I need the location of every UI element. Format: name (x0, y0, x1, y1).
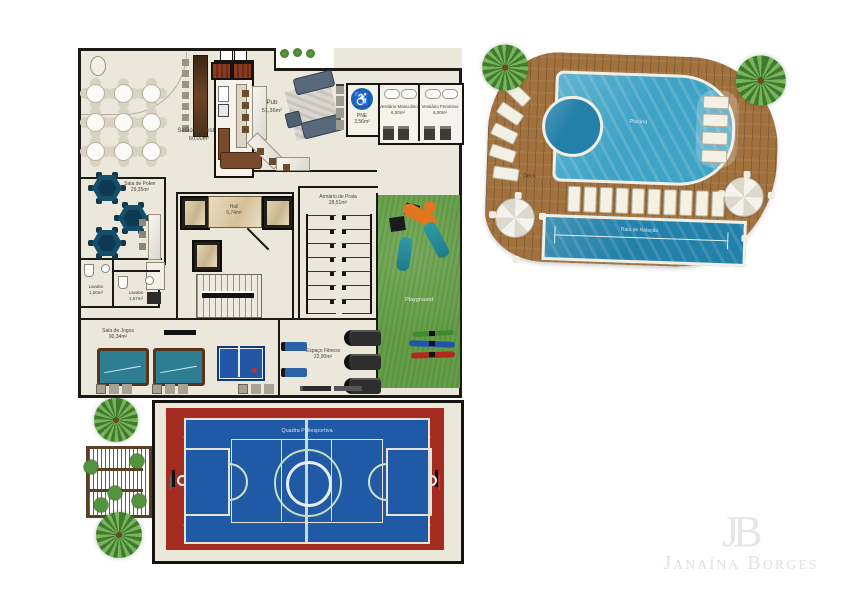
treadmill (344, 354, 381, 370)
row-lounger (647, 189, 661, 215)
vine (129, 453, 145, 469)
wall (78, 306, 160, 308)
court-block: Quadra Poliesportiva (152, 400, 464, 564)
plant-decor (306, 49, 315, 58)
court-blue: Quadra Poliesportiva (184, 418, 430, 544)
watermark-name: Janaína Borges (634, 552, 848, 575)
playground-lawn: Playground (378, 195, 460, 388)
wall (78, 318, 378, 320)
watermark-monogram: JB (722, 506, 756, 557)
play-slide-teal (396, 236, 414, 271)
room-label-quadra: Quadra Poliesportiva (186, 428, 428, 435)
vine (93, 497, 109, 513)
umbrella-chair (489, 211, 496, 218)
play-platform (389, 216, 406, 232)
palm-tree (735, 55, 787, 107)
volley-rect (231, 439, 383, 523)
shower-tub (425, 89, 441, 99)
stool-row (152, 384, 162, 394)
kitchen-sink (218, 86, 229, 102)
palm-tree (96, 512, 142, 558)
wall (112, 258, 114, 308)
wall (298, 186, 300, 320)
volley-third (281, 439, 282, 521)
wall (298, 186, 378, 188)
row-lounger (615, 187, 629, 213)
toilet (84, 264, 94, 277)
room-label-playground: Playground (378, 297, 460, 304)
treadmill (344, 330, 381, 346)
wall (274, 68, 462, 71)
room-label-poker: Sala de Poker29,35m² (120, 181, 160, 194)
wall (164, 177, 166, 265)
palm-tree (94, 398, 138, 442)
elevator (180, 196, 210, 230)
room-label-jogos: Sala de Jogos90,34m² (95, 328, 141, 341)
row-lounger (631, 188, 645, 214)
vine (83, 459, 99, 475)
locker-bay (342, 214, 372, 314)
wall (176, 192, 294, 194)
plant-decor (293, 48, 302, 57)
elevator (192, 240, 222, 272)
locker-dots (330, 216, 334, 220)
kitchen-door (234, 50, 247, 61)
wall (274, 48, 276, 70)
pool-deck-area: Piscina Deck Raia de Natação (483, 50, 780, 270)
dining-table (86, 84, 105, 103)
row-lounger (583, 186, 597, 212)
shower-tub (442, 89, 458, 99)
billiard-table (153, 348, 205, 386)
room-label-hall: Hall6,74m² (208, 204, 260, 217)
bench (398, 126, 409, 140)
room-label-wc-pne: PNE3,56m² (346, 113, 378, 126)
wall (176, 192, 178, 318)
seesaw-red (411, 351, 455, 359)
locker-bay (306, 214, 336, 314)
row-lounger (567, 186, 581, 212)
buffet-stool (182, 59, 189, 66)
wall (112, 270, 160, 272)
stool-row (238, 384, 248, 394)
key-left (184, 448, 230, 516)
pool-lounger (702, 131, 728, 145)
vine (131, 493, 147, 509)
treadmill (344, 378, 381, 394)
billiard-table (97, 348, 149, 386)
room-label-lavabo2: Lavabo1,57m² (116, 290, 156, 301)
play-cap-orange (424, 201, 436, 213)
backboard (172, 470, 175, 487)
vine (107, 485, 123, 501)
row-lounger (599, 187, 613, 213)
kitchen-door (220, 50, 233, 61)
wall (78, 395, 462, 398)
accessible-icon: ♿ (351, 88, 373, 110)
room-label-vest-masc: Vestiário Masculino6,00m² (379, 104, 417, 115)
room-label-armario: Armário de Praia28,51m² (302, 194, 374, 207)
sofa-brown (220, 152, 262, 169)
dining-table (86, 113, 105, 132)
court-red-surround: Quadra Poliesportiva (166, 408, 444, 550)
floor-plan: Salão de Festas60,00m² Pub51,36m² ♿ PNE3… (0, 0, 852, 600)
vase-decor (90, 56, 106, 76)
pool-lounger (703, 95, 729, 109)
dining-table (86, 142, 105, 161)
buffet-counter (193, 55, 208, 137)
pergola (86, 446, 152, 518)
elevator (262, 196, 294, 230)
pingpong-paddle (252, 368, 257, 373)
locker-dots (342, 216, 346, 220)
bar-counter (276, 157, 310, 171)
key-right (386, 448, 432, 516)
accessible-glyph: ♿ (353, 91, 370, 107)
shower-tub (401, 89, 417, 99)
bench (424, 126, 435, 140)
bench (383, 126, 394, 140)
wall-stool (336, 84, 344, 94)
tv-panel (164, 330, 196, 335)
toilet (118, 276, 128, 289)
bar-stool (242, 90, 249, 97)
dining-table (114, 84, 133, 103)
dining-table (114, 142, 133, 161)
wall (78, 177, 166, 179)
wall (250, 170, 377, 172)
wall (418, 83, 420, 141)
exercise-bike (281, 368, 307, 377)
bbq-grill (211, 62, 232, 80)
exercise-bike (281, 342, 307, 351)
shower-tub (384, 89, 400, 99)
room-label-lavabo1: Lavabo1,50m² (80, 284, 112, 295)
row-lounger (663, 189, 677, 215)
dining-table (142, 113, 161, 132)
sink (145, 276, 154, 285)
room-label-pub: Pub51,36m² (252, 100, 292, 114)
stairs-rail (202, 291, 254, 298)
dining-table (142, 142, 161, 161)
wall (278, 320, 280, 396)
umbrella-chair (718, 190, 725, 197)
room-label-vest-fem: Vestiário Feminino6,00m² (421, 104, 459, 115)
bar-stool (257, 148, 264, 155)
pingpong-net (238, 346, 240, 377)
poker-counter (148, 214, 161, 260)
room-label-fitness: Espaço Fitness22,90m² (300, 348, 346, 361)
kitchen-fridge (218, 104, 229, 117)
plant-decor (280, 49, 289, 58)
bench (440, 126, 451, 140)
seesaw-blue (409, 340, 455, 348)
pool-lounger (702, 113, 728, 127)
stool-row (96, 384, 106, 394)
poker-stool (139, 219, 146, 226)
dumbbell-rack (303, 386, 331, 391)
bbq-grill (232, 62, 253, 80)
dining-table (114, 113, 133, 132)
pool-lounger (701, 149, 727, 163)
row-lounger (679, 190, 693, 216)
sink (101, 264, 110, 273)
dining-table (142, 84, 161, 103)
room-label-deck: Deck (514, 173, 544, 181)
row-lounger (695, 190, 709, 216)
play-slide-teal (422, 220, 451, 260)
seesaw-pivot (429, 331, 435, 336)
pingpong-table (217, 346, 265, 381)
